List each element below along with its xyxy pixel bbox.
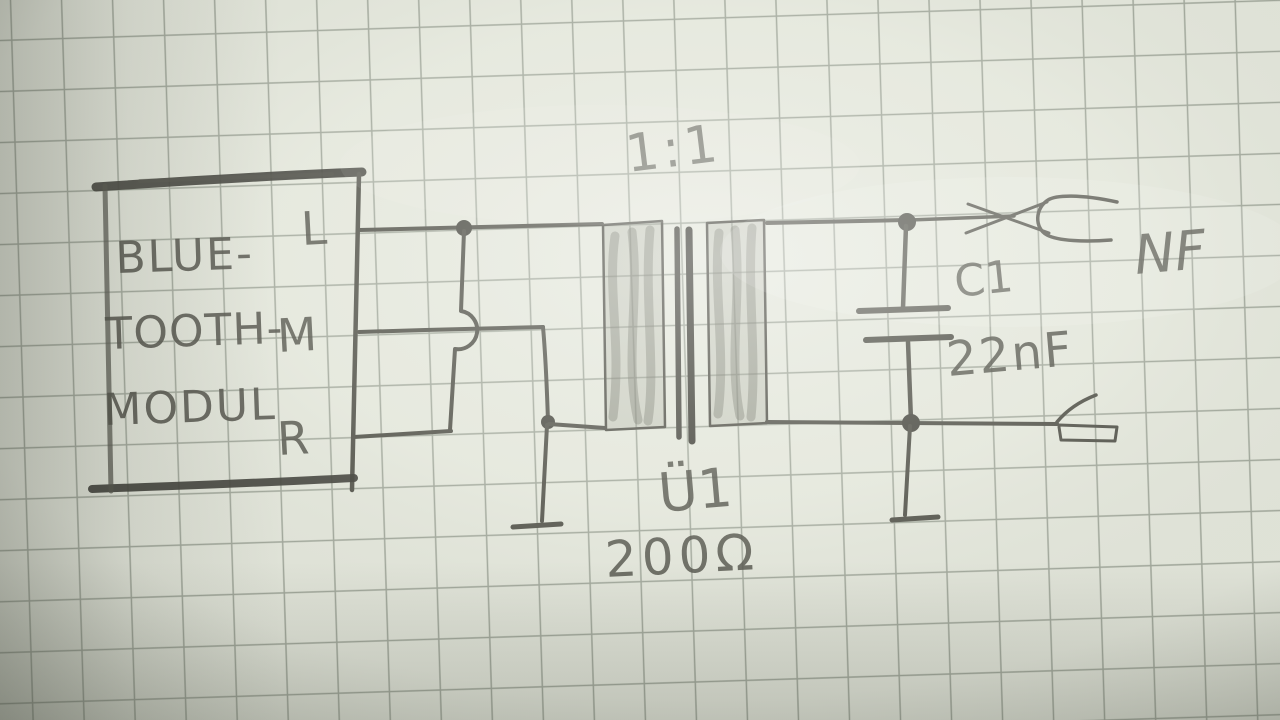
module-label-line1: BLUE- bbox=[115, 228, 255, 284]
module-label-line2: TOOTH- bbox=[104, 303, 285, 360]
capacitor-designator-label: C1 bbox=[952, 251, 1016, 308]
transformer-core-line-2 bbox=[689, 230, 692, 441]
output-label-NF: NF bbox=[1132, 218, 1210, 287]
transformer-ratio-label: 1:1 bbox=[622, 114, 724, 185]
capacitor-value-label: 22nF bbox=[944, 321, 1076, 388]
module-label-line3: MODUL bbox=[103, 379, 278, 436]
transformer-primary-winding bbox=[603, 221, 665, 430]
pin-label-L: L bbox=[300, 201, 329, 256]
transformer-core-line-1 bbox=[677, 229, 679, 437]
transformer-impedance-label: 200Ω bbox=[604, 523, 760, 589]
pin-label-M: M bbox=[276, 307, 318, 363]
capacitor-plate-top bbox=[859, 308, 948, 311]
capacitor-lead-top bbox=[903, 226, 906, 308]
transformer-designator-label: Ü1 bbox=[656, 456, 735, 525]
capacitor-lead-bottom bbox=[908, 342, 911, 421]
photo-of-schematic: BLUE- TOOTH- MODUL L M R 1:1 Ü1 200Ω C1 … bbox=[0, 0, 1280, 720]
capacitor-plate-bottom bbox=[866, 337, 951, 340]
terminal-bar-cap bbox=[892, 517, 938, 520]
transformer-secondary-winding bbox=[707, 220, 767, 426]
terminal-bar-M bbox=[513, 524, 561, 527]
pin-label-R: R bbox=[276, 410, 311, 466]
schematic-canvas: BLUE- TOOTH- MODUL L M R 1:1 Ü1 200Ω C1 … bbox=[0, 0, 1280, 720]
